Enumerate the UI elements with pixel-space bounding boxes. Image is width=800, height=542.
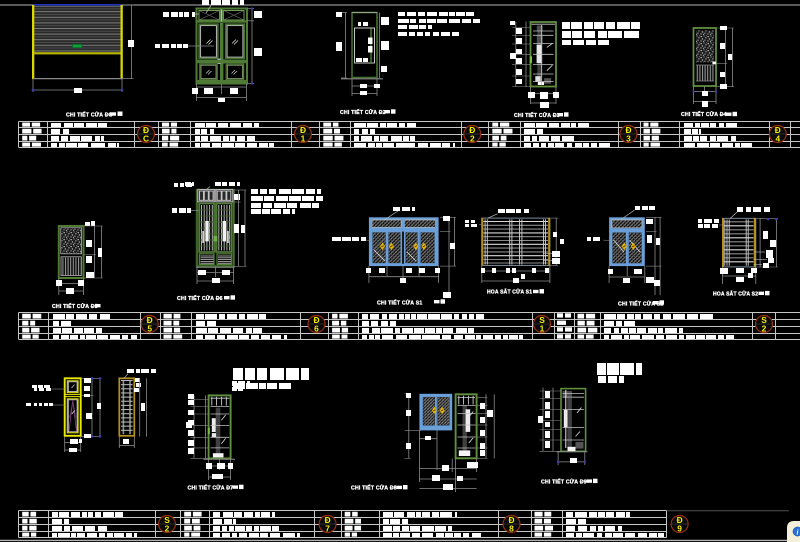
svg-text:2: 2 — [165, 523, 170, 533]
svg-text:HOA SẮT CỬA S1: HOA SẮT CỬA S1 — [487, 287, 532, 295]
svg-text:9: 9 — [677, 523, 682, 533]
svg-text:CHI TIẾT CỬA Đ7: CHI TIẾT CỬA Đ7 — [188, 484, 234, 491]
svg-text:1: 1 — [301, 133, 306, 143]
svg-text:CHI TIẾT CỬA Đ6: CHI TIẾT CỬA Đ6 — [177, 295, 223, 302]
svg-text:2: 2 — [762, 323, 767, 333]
svg-text:3: 3 — [626, 133, 631, 143]
svg-text:CHI TIẾT CỬA ĐC: CHI TIẾT CỬA ĐC — [66, 112, 113, 119]
svg-text:CHI TIẾT CỬA Đ9: CHI TIẾT CỬA Đ9 — [541, 478, 587, 485]
svg-text:CHI TIẾT CỬA Đ3: CHI TIẾT CỬA Đ3 — [514, 112, 560, 119]
svg-text:5: 5 — [147, 323, 152, 333]
svg-text:CHI TIẾT CỬA Đ8: CHI TIẾT CỬA Đ8 — [351, 485, 397, 492]
svg-text:6: 6 — [314, 323, 319, 333]
svg-text:2: 2 — [470, 133, 475, 143]
svg-text:C: C — [143, 133, 149, 143]
svg-text:HOA SẮT CỬA S2: HOA SẮT CỬA S2 — [713, 289, 758, 297]
svg-text:1: 1 — [540, 323, 545, 333]
svg-text:CHI TIẾT CỬA Đ2: CHI TIẾT CỬA Đ2 — [340, 109, 386, 116]
svg-text:7: 7 — [325, 523, 330, 533]
svg-text:CHI TIẾT CỬA Đ4: CHI TIẾT CỬA Đ4 — [681, 111, 727, 118]
svg-text:8: 8 — [509, 523, 514, 533]
svg-text:4: 4 — [775, 133, 780, 143]
svg-text:CHI TIẾT CỬA Đ5: CHI TIẾT CỬA Đ5 — [52, 303, 98, 310]
svg-text:CHI TIẾT CỬA S1: CHI TIẾT CỬA S1 — [377, 299, 422, 306]
svg-text:i: i — [797, 528, 799, 536]
